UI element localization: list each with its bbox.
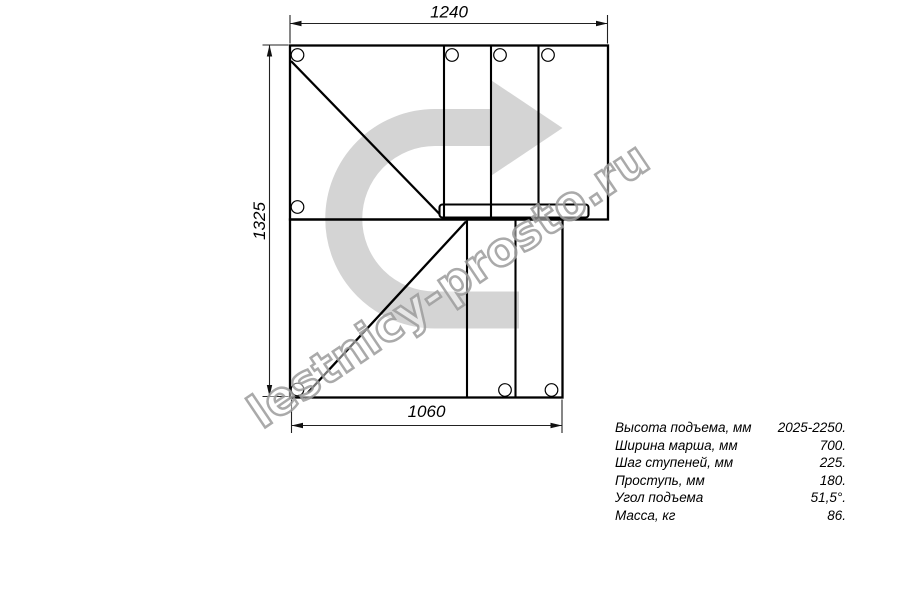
spec-row: Угол подъема 51,5°. bbox=[615, 489, 846, 507]
spec-label: Проступь, мм bbox=[615, 472, 705, 490]
landing-step bbox=[440, 205, 589, 218]
dimension-top: 1240 bbox=[290, 3, 608, 44]
spec-value: 86. bbox=[827, 507, 846, 525]
dimension-arrowhead bbox=[596, 21, 608, 26]
dimension-bottom: 1060 bbox=[292, 400, 563, 434]
spec-label: Масса, кг bbox=[615, 507, 675, 525]
dimension-left: 1325 bbox=[250, 45, 289, 397]
spec-label: Высота подъема, мм bbox=[615, 419, 751, 437]
spec-label: Ширина марша, мм bbox=[615, 437, 738, 455]
mounting-hole bbox=[494, 49, 507, 62]
spec-row: Высота подъема, мм 2025-2250. bbox=[615, 419, 846, 437]
mounting-hole bbox=[499, 384, 512, 397]
mounting-hole bbox=[291, 201, 304, 214]
spec-row: Ширина марша, мм 700. bbox=[615, 437, 846, 455]
mounting-hole bbox=[545, 384, 558, 397]
spec-value: 225. bbox=[820, 454, 846, 472]
spec-row: Масса, кг 86. bbox=[615, 507, 846, 525]
spec-value: 2025-2250. bbox=[778, 419, 846, 437]
dimension-left-label: 1325 bbox=[250, 202, 269, 240]
mounting-hole bbox=[446, 49, 459, 62]
dimension-top-label: 1240 bbox=[430, 3, 468, 22]
spec-value: 51,5°. bbox=[811, 489, 846, 507]
mounting-hole bbox=[291, 383, 304, 396]
mounting-hole bbox=[291, 49, 304, 62]
dimension-arrowhead bbox=[290, 21, 302, 26]
dimension-arrowhead bbox=[267, 45, 272, 57]
dimension-arrowhead bbox=[267, 385, 272, 397]
spec-table: Высота подъема, мм 2025-2250. Ширина мар… bbox=[615, 419, 846, 524]
spec-label: Угол подъема bbox=[615, 489, 703, 507]
spec-row: Шаг ступеней, мм 225. bbox=[615, 454, 846, 472]
spec-value: 180. bbox=[820, 472, 846, 490]
stair-plan-page: 1240 1325 1060 lestnicy-prosto.ru Высота… bbox=[0, 0, 900, 600]
dimension-arrowhead bbox=[292, 423, 304, 428]
spec-label: Шаг ступеней, мм bbox=[615, 454, 733, 472]
mounting-hole bbox=[542, 49, 555, 62]
direction-arrow-head bbox=[490, 80, 563, 177]
dimension-arrowhead bbox=[551, 423, 563, 428]
direction-arrow bbox=[344, 80, 563, 311]
spec-value: 700. bbox=[820, 437, 846, 455]
dimension-bottom-label: 1060 bbox=[408, 402, 446, 421]
spec-row: Проступь, мм 180. bbox=[615, 472, 846, 490]
